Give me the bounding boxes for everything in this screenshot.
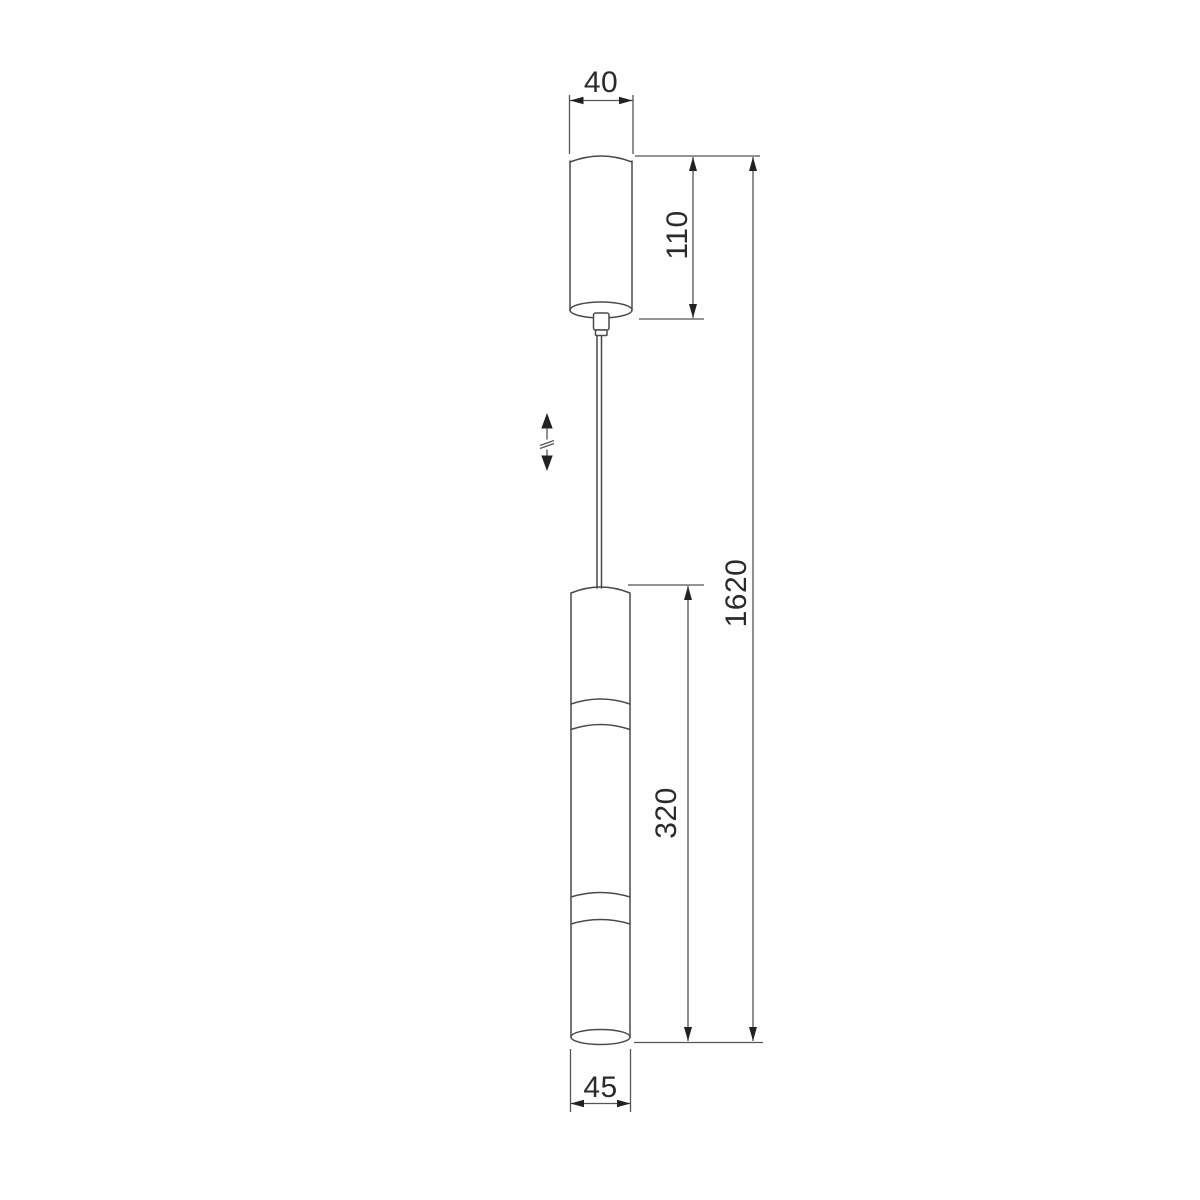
pendant-lamp-dimension-drawing: 40 110 320 1620 45 — [0, 0, 1200, 1200]
dim40-label: 40 — [584, 66, 618, 99]
ceiling-canopy — [570, 156, 632, 318]
dim1620-arrow-bottom — [749, 1027, 757, 1041]
dim45-arrow-left — [571, 1100, 585, 1108]
lower-ring-top-line — [571, 893, 630, 898]
dim40-arrow-right — [619, 97, 633, 105]
dim40-arrow-left — [570, 97, 584, 105]
dim45-arrow-right — [617, 1100, 631, 1108]
dim-overall-height: 1620 — [634, 157, 763, 1043]
adjust-up-arrowhead — [541, 413, 552, 429]
canopy-top-edge — [570, 156, 632, 162]
dim1620-label: 1620 — [720, 559, 753, 628]
upper-ring-bottom-line — [571, 725, 630, 730]
dim110-label: 110 — [661, 210, 694, 259]
connector-block — [594, 313, 610, 330]
dim-body-width: 45 — [571, 1049, 631, 1112]
adjust-down-arrowhead — [541, 456, 552, 472]
lamp-body — [571, 587, 630, 1045]
height-adjust-icon — [540, 413, 554, 471]
connector-lip — [596, 330, 608, 336]
dim-body-height: 320 — [628, 585, 704, 1041]
upper-ring-top-line — [571, 699, 630, 704]
dim110-arrow-bottom — [689, 304, 697, 318]
lower-ring-bottom-line — [571, 920, 630, 925]
dim-canopy-width: 40 — [570, 66, 634, 154]
dim1620-arrow-top — [749, 157, 757, 171]
cable-connector — [594, 313, 610, 336]
dim320-label: 320 — [650, 787, 683, 839]
body-outline — [571, 587, 630, 1037]
body-bottom-rim — [571, 1030, 630, 1045]
dim110-arrow-top — [689, 157, 697, 171]
suspension-cable — [597, 336, 602, 588]
dim-canopy-height: 110 — [635, 156, 760, 319]
dim320-arrow-bottom — [684, 1027, 692, 1041]
dim320-arrow-top — [684, 586, 692, 600]
dim45-label: 45 — [583, 1071, 617, 1104]
dimension-drawing-canvas: 40 110 320 1620 45 — [0, 0, 1200, 1200]
